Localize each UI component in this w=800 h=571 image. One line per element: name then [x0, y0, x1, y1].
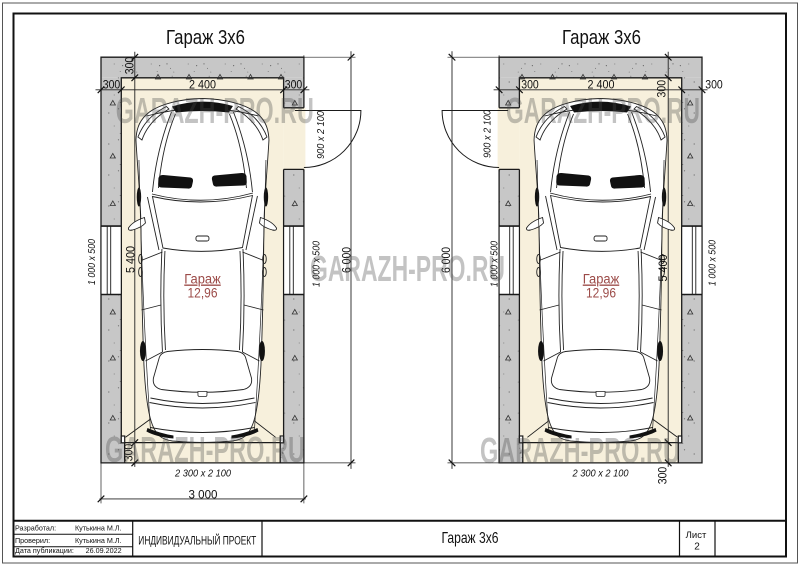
svg-text:300: 300 — [705, 78, 723, 92]
svg-text:Гараж: Гараж — [583, 272, 620, 287]
svg-text:3 000: 3 000 — [189, 487, 218, 501]
svg-text:Гараж 3х6: Гараж 3х6 — [442, 530, 499, 547]
svg-text:26.09.2022: 26.09.2022 — [86, 546, 122, 555]
svg-text:5 400: 5 400 — [124, 246, 138, 273]
svg-text:12,96: 12,96 — [586, 286, 616, 301]
svg-text:1 000 x 500: 1 000 x 500 — [86, 239, 98, 285]
svg-text:12,96: 12,96 — [188, 286, 218, 301]
svg-text:Разработал:: Разработал: — [15, 524, 56, 533]
svg-text:2: 2 — [694, 542, 700, 553]
svg-text:Гараж: Гараж — [184, 272, 221, 287]
svg-text:900 x 2 100: 900 x 2 100 — [482, 110, 494, 158]
svg-text:Кутькина М.Л.: Кутькина М.Л. — [75, 536, 122, 545]
svg-text:GARAZH-PRO.RU: GARAZH-PRO.RU — [105, 429, 305, 470]
svg-text:Лист: Лист — [686, 530, 707, 541]
svg-text:Гараж 3х6: Гараж 3х6 — [562, 26, 641, 49]
svg-text:900 x 2 100: 900 x 2 100 — [315, 111, 327, 159]
svg-text:ИНДИВИДУАЛЬНЫЙ ПРОЕКТ: ИНДИВИДУАЛЬНЫЙ ПРОЕКТ — [138, 535, 256, 548]
svg-text:5 400: 5 400 — [656, 254, 670, 281]
svg-text:GARAZH-PRO.RU: GARAZH-PRO.RU — [116, 90, 314, 131]
svg-text:1 000 x 500: 1 000 x 500 — [707, 240, 719, 286]
svg-text:GARAZH-PRO.RU: GARAZH-PRO.RU — [480, 430, 680, 471]
svg-text:Проверил:: Проверил: — [15, 536, 50, 545]
svg-text:Кутькина М.Л.: Кутькина М.Л. — [75, 524, 122, 533]
svg-text:GARAZH-PRO.RU: GARAZH-PRO.RU — [506, 90, 700, 131]
svg-text:300: 300 — [122, 56, 136, 74]
svg-text:Дата публикации:: Дата публикации: — [15, 546, 74, 555]
svg-text:Гараж 3х6: Гараж 3х6 — [166, 26, 245, 49]
svg-text:GARAZH-PRO.RU: GARAZH-PRO.RU — [310, 248, 505, 289]
